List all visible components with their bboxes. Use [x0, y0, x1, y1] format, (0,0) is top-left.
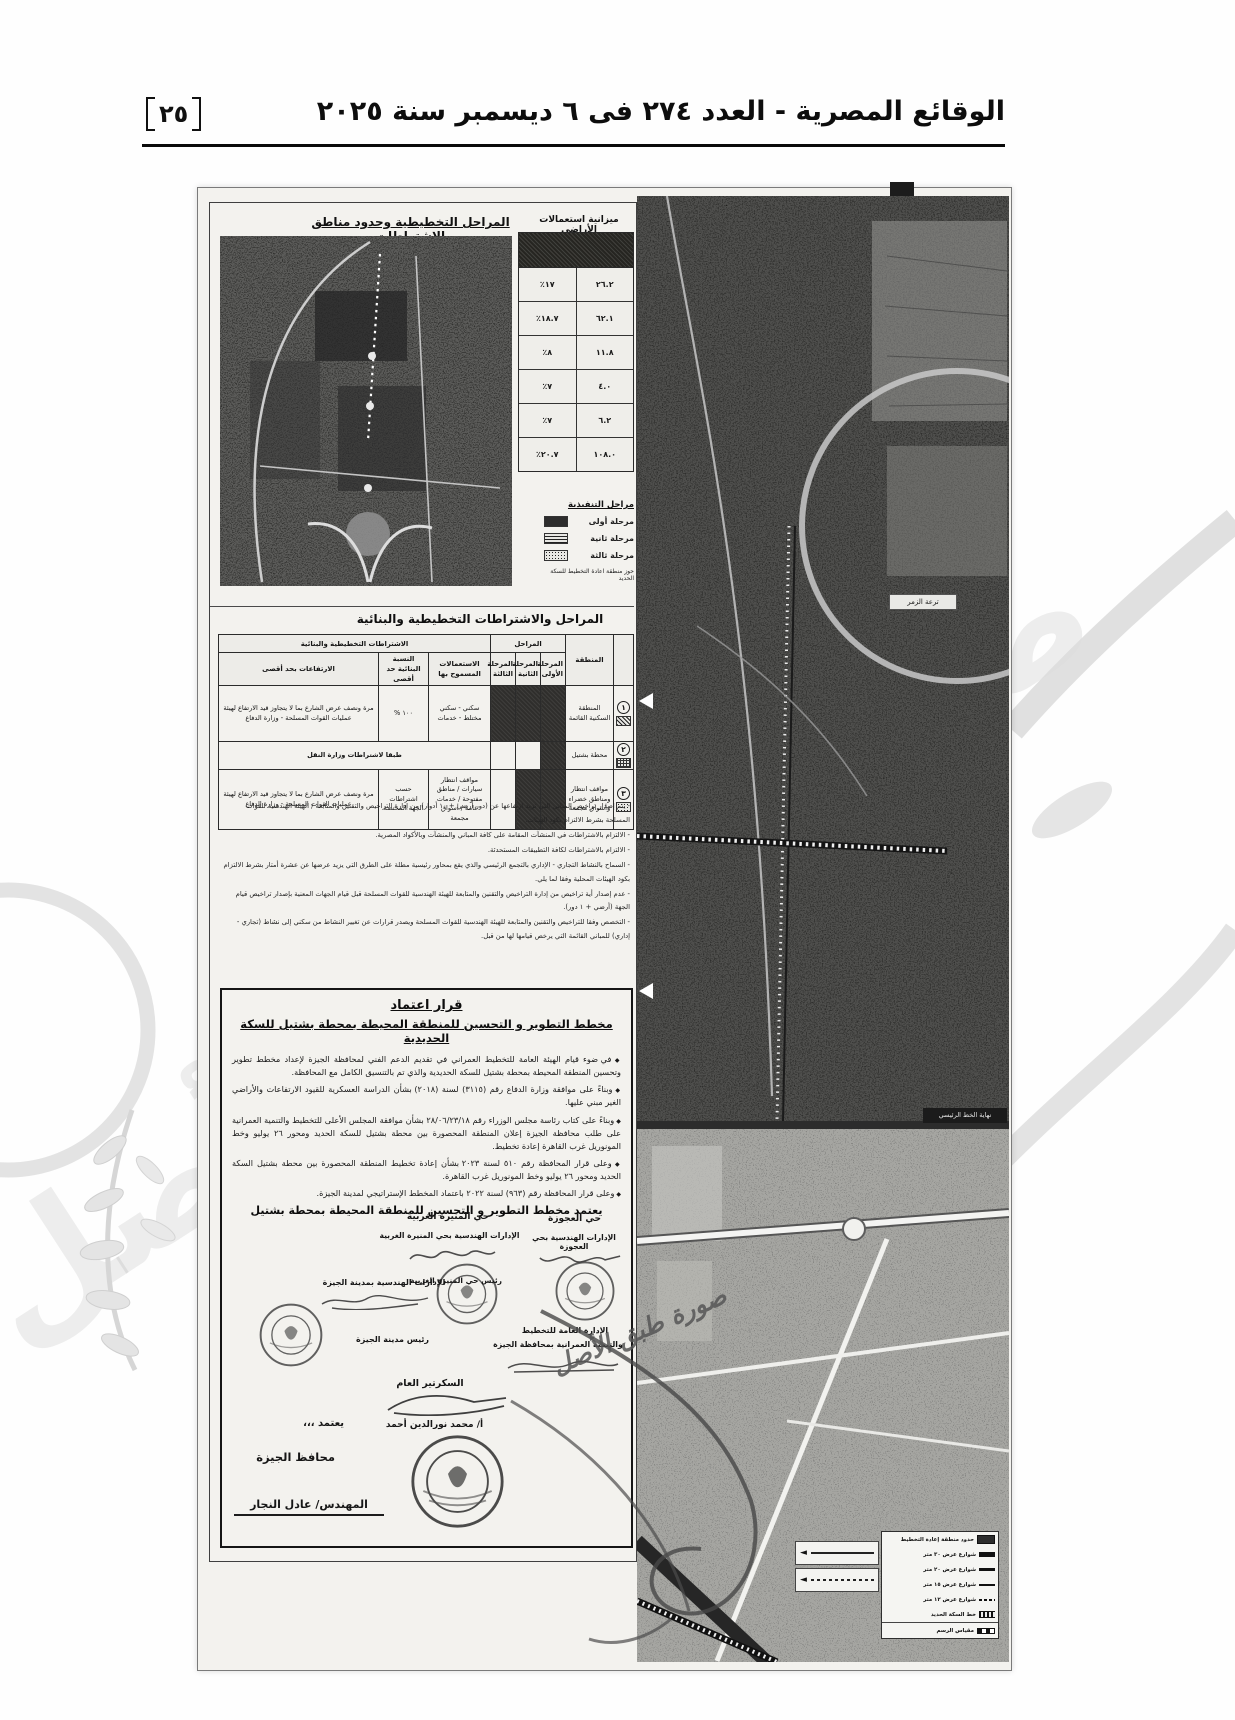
giza-city-head: رئيس مدينة الجيزة: [340, 1335, 445, 1344]
gazette-page: صورة طبق الأصل ٢٥ الوقائع المصرية - العد…: [0, 0, 1235, 1720]
phase-legend-note: حوز منطقة اعادة التخطيط للسكة الحديد: [544, 568, 634, 582]
phase-legend: مراحل التنفيذية مرحلة أولى مرحلة ثانية م…: [544, 500, 634, 582]
land-use-percent: ١٨.٧٪: [519, 302, 576, 335]
col-phase2: المرحلة الثانية: [516, 653, 541, 686]
agricultural-fields-patch: [872, 221, 1007, 421]
zone-number-badge: ٣: [617, 787, 630, 800]
phase1-filled-cell: [541, 686, 566, 742]
decree-paragraph: وبناءً على كتاب رئاسة مجلس الوزراء رقم ٢…: [232, 1114, 621, 1153]
official-round-stamp: [258, 1302, 324, 1368]
giza-city-dept: الإدارات الهندسية بمدينة الجيزة: [310, 1278, 458, 1287]
secretary-general-name: أ/ محمد نورالدين أحمد: [357, 1420, 512, 1430]
map-legend-row: شوارع عرض ١٢ متر: [882, 1592, 998, 1607]
col-phase3: المرحلة الثالثة: [491, 653, 516, 686]
decree-box: قرار اعتماد مخطط التطوير و التحسين للمنط…: [220, 988, 633, 1548]
roundabout: [843, 1218, 865, 1240]
railway-swatch-icon: [979, 1611, 995, 1618]
left-arrow-icon: ◄: [800, 1575, 807, 1585]
left-arrow-icon: ◄: [800, 1548, 807, 1558]
map-superblock-1: [315, 291, 407, 361]
land-use-percent: ١٧٪: [519, 268, 576, 301]
land-use-area: ٦٢.١: [576, 302, 634, 335]
agricultural-fields-patch: [887, 446, 1007, 576]
land-use-area: ١٠٨.٠: [576, 438, 634, 471]
phase-legend-item: مرحلة ثانية: [544, 530, 634, 547]
heights-cell: مرة ونصف عرض الشارع بما لا يتجاوز قيد ال…: [219, 686, 379, 742]
conditions-table-title: المراحل والاشتراطات التخطيطية والبنائية: [328, 612, 632, 626]
land-use-percent: ٨٪: [519, 336, 576, 369]
zone-number-cell: ١: [614, 686, 634, 742]
site-map-upper-texture: [637, 196, 1009, 1121]
phase3-swatch-icon: [544, 550, 568, 561]
map-label-canal: ترعة الزمر: [889, 594, 957, 610]
decree-paragraph: وعلى قرار المحافظة رقم ٥١٠ لسنة ٢٠٢٣ بشأ…: [232, 1157, 621, 1183]
large-site-map: ترعة الزمر: [637, 196, 1009, 1662]
land-use-table-header: [519, 233, 633, 268]
symbol-line: [811, 1552, 874, 1554]
land-use-row: ٤.٠ ٧٪: [519, 370, 633, 404]
decree-paragraph: وعلى قرار المحافظة رقم (٩٦٣) لسنة ٢٠٢٢ ب…: [232, 1187, 621, 1200]
land-use-percent: ٢٠.٧٪: [519, 438, 576, 471]
zone-name-cell: المنطقة السكنية القائمة: [566, 686, 614, 742]
decree-paragraph: وبناءً على موافقة وزارة الدفاع رقم (٣١١٥…: [232, 1083, 621, 1109]
governor-name: المهندس/ عادل النجار: [234, 1498, 384, 1516]
map-legend-row: شوارع عرض ٣٠ متر: [882, 1547, 998, 1562]
merged-requirements-cell: طبقا لاشتراطات وزارة النقل: [219, 742, 491, 770]
page-number: ٢٥: [146, 96, 230, 132]
land-use-area: ٤.٠: [576, 370, 634, 403]
conditions-row-1: ١ المنطقة السكنية القائمة سكني - سكني مخ…: [219, 686, 634, 742]
map-symbol-box: ◄: [795, 1541, 879, 1565]
footnote-line: - التخصص وفقا للتراخيص والتقنين والمتابع…: [222, 916, 630, 944]
map-superblock-2: [338, 386, 426, 491]
col-group-requirements: الاشتراطات التخطيطية والبنائية: [219, 635, 491, 653]
header-rule: [142, 144, 1005, 147]
phase-legend-item: مرحلة أولى: [544, 513, 634, 530]
land-use-row: ١٠٨.٠ ٢٠.٧٪: [519, 438, 633, 471]
station-dot: [364, 484, 372, 492]
road30-swatch-icon: [979, 1552, 995, 1557]
page-number-bracket-left: [146, 97, 155, 131]
map-legend-label: شوارع عرض ٣٠ متر: [923, 1552, 976, 1558]
map-legend-row: شوارع عرض ١٥ متر: [882, 1577, 998, 1592]
map-legend: حدود منطقة إعادة التخطيط شوارع عرض ٣٠ مت…: [881, 1531, 999, 1639]
map-legend-label: شوارع عرض ١٥ متر: [923, 1582, 976, 1588]
map-legend-row: خط السكة الحديد: [882, 1607, 998, 1622]
road12-swatch-icon: [979, 1599, 995, 1601]
station-dot: [368, 352, 376, 360]
land-use-table: ٢٦.٢ ١٧٪ ٦٢.١ ١٨.٧٪ ١١.٨ ٨٪ ٤.٠ ٧٪ ٦.٢ ٧…: [518, 232, 634, 472]
phase-legend-label: مرحلة أولى: [589, 517, 634, 526]
land-use-row: ١١.٨ ٨٪: [519, 336, 633, 370]
right-margin-watermark: [1002, 460, 1235, 1180]
land-use-row: ٢٦.٢ ١٧٪: [519, 268, 633, 302]
symbol-dashed-line: [811, 1579, 874, 1581]
approval-word: يعتمد ،،،: [274, 1418, 344, 1429]
decree-paragraphs: في ضوء قيام الهيئة العامة للتخطيط العمرا…: [232, 1053, 621, 1200]
footnote-line: - السماح بالنشاط التجاري - الإداري بالتج…: [222, 859, 630, 887]
zone-hatch-swatch-icon: [616, 716, 631, 726]
col-phase1: المرحلة الأولى: [541, 653, 566, 686]
official-round-stamp: [435, 1262, 499, 1326]
section-divider: [210, 606, 634, 607]
col-uses: الاستعمالات المسموح بها: [429, 653, 491, 686]
footnote-line: - الالتزام بالاشتراطات في المنشآت المقام…: [222, 829, 630, 843]
station-dot: [366, 402, 374, 410]
district-center-dept: الإدارات الهندسية بحي المنيرة الغربية: [377, 1231, 522, 1240]
phase2-filled-cell: [516, 686, 541, 742]
map-legend-row: حدود منطقة إعادة التخطيط: [882, 1532, 998, 1547]
map-legend-label: شوارع عرض ٢٠ متر: [923, 1567, 976, 1573]
map-legend-label: حدود منطقة إعادة التخطيط: [901, 1537, 974, 1543]
phase-legend-label: مرحلة ثالثة: [590, 551, 634, 560]
phase-legend-title: مراحل التنفيذية: [544, 500, 634, 510]
scanned-decree-document: المراحل التخطيطية وحدود مناطق الاشتراطات: [197, 187, 1012, 1671]
map-legend-label: شوارع عرض ١٢ متر: [923, 1597, 976, 1603]
governor-title: محافظ الجيزة: [240, 1450, 335, 1464]
zone-name-cell: محطة بشتيل: [566, 742, 614, 770]
road20-swatch-icon: [979, 1568, 995, 1571]
ratio-cell: ١٠٠ %: [379, 686, 429, 742]
land-use-area: ١١.٨: [576, 336, 634, 369]
map-scale-label: مقياس الرسم: [936, 1628, 974, 1634]
col-zone-number: [614, 635, 634, 686]
scale-bar-icon: [977, 1628, 995, 1634]
map-symbol-box: ◄: [795, 1568, 879, 1592]
blocks-patch: [652, 1146, 722, 1241]
map-legend-label: خط السكة الحديد: [931, 1612, 976, 1618]
district-right-title: حي العجوزة: [522, 1214, 627, 1224]
district-center-title: حي المنيرة الغربية: [383, 1212, 513, 1222]
map-scale-row: مقياس الرسم: [882, 1622, 998, 1638]
zone-number-cell: ٢: [614, 742, 634, 770]
phase1-filled-cell: [541, 742, 566, 770]
map-label-line-end: نهاية الخط الرئيسي: [923, 1108, 1007, 1123]
decree-title: قرار اعتماد: [222, 998, 631, 1013]
uses-cell: سكني - سكني مختلط - خدمات: [429, 686, 491, 742]
footnote-line: - عدم إصدار أية تراخيص من إدارة التراخيص…: [222, 888, 630, 916]
land-use-row: ٦.٢ ٧٪: [519, 404, 633, 438]
footnote-line: - الالتزام بالاشتراطات لكافة التطبيقات ا…: [222, 844, 630, 858]
zone-number-badge: ٢: [617, 743, 630, 756]
phase-legend-label: مرحلة ثانية: [590, 534, 634, 543]
phase3-filled-cell: [491, 686, 516, 742]
planning-phases-map: [220, 236, 512, 586]
phase-legend-item: مرحلة ثالثة: [544, 547, 634, 564]
footnote-line: - يتم إصدار تراخيص المباني التي تزيد ارت…: [222, 800, 630, 828]
phase2-empty-cell: [516, 742, 541, 770]
phase3-empty-cell: [491, 742, 516, 770]
zone-hatch-swatch-icon: [616, 758, 631, 768]
col-ratio: النسبة البنائية حد أقصى: [379, 653, 429, 686]
page-number-bracket-right: [192, 97, 201, 131]
col-group-phases: المراحل: [491, 635, 566, 653]
land-use-area: ٦.٢: [576, 404, 634, 437]
phase2-swatch-icon: [544, 533, 568, 544]
land-use-percent: ٧٪: [519, 370, 576, 403]
signature-scrawl: [382, 1392, 512, 1416]
decree-subtitle: مخطط التطوير و التحسين للمنطقة المحيطة ب…: [222, 1017, 631, 1045]
boundary-swatch-icon: [977, 1535, 995, 1544]
land-use-row: ٦٢.١ ١٨.٧٪: [519, 302, 633, 336]
signature-scrawl: [318, 1292, 433, 1310]
land-use-area: ٢٦.٢: [576, 268, 634, 301]
zone-number-badge: ١: [617, 701, 630, 714]
table-footnotes: - يتم إصدار تراخيص المباني التي تزيد ارت…: [222, 800, 630, 945]
page-number-value: ٢٥: [159, 100, 188, 128]
road15-swatch-icon: [979, 1584, 995, 1586]
decree-paragraph: في ضوء قيام الهيئة العامة للتخطيط العمرا…: [232, 1053, 621, 1079]
gazette-header-title: الوقائع المصرية - العدد ٢٧٤ فى ٦ ديسمبر …: [240, 96, 1005, 127]
map-legend-row: شوارع عرض ٢٠ متر: [882, 1562, 998, 1577]
land-use-percent: ٧٪: [519, 404, 576, 437]
phase1-swatch-icon: [544, 516, 568, 527]
col-zone: المنطقة: [566, 635, 614, 686]
col-heights: الارتفاعات بحد أقصى: [219, 653, 379, 686]
official-round-stamp: [554, 1260, 616, 1322]
secretary-general-title: السكرتير العام: [380, 1378, 480, 1389]
conditions-row-2: ٢ محطة بشتيل طبقا لاشتراطات وزارة النقل: [219, 742, 634, 770]
governor-round-stamp: [410, 1434, 505, 1529]
left-margin-watermark: [0, 840, 230, 1380]
